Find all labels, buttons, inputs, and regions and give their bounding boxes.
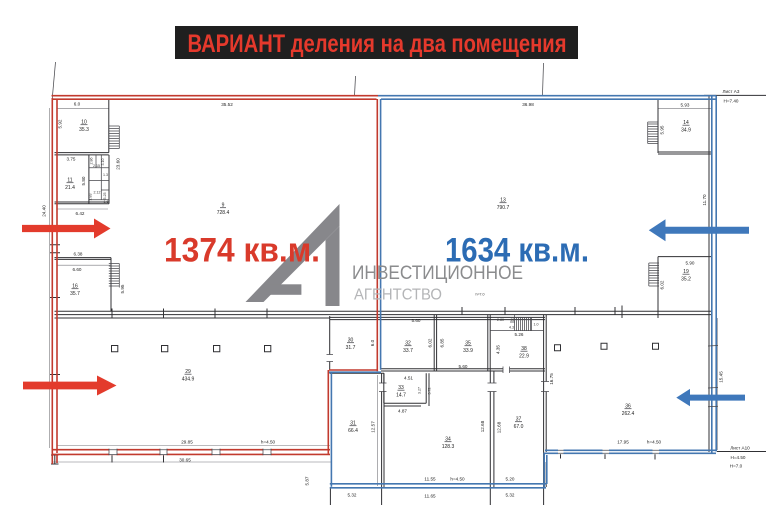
svg-text:АГЕНТСТВО: АГЕНТСТВО — [354, 287, 442, 304]
svg-text:21.4: 21.4 — [65, 185, 75, 191]
svg-text:h=4.50: h=4.50 — [261, 440, 276, 445]
svg-text:12.68: 12.68 — [480, 420, 485, 432]
svg-text:1.0: 1.0 — [534, 323, 539, 327]
svg-text:11.55: 11.55 — [424, 477, 436, 482]
svg-text:67.0: 67.0 — [514, 424, 524, 430]
svg-text:Н=7.40: Н=7.40 — [724, 99, 739, 104]
svg-text:2.15: 2.15 — [93, 164, 100, 168]
svg-text:Лист А10: Лист А10 — [730, 446, 750, 451]
svg-text:36.98: 36.98 — [522, 102, 534, 107]
svg-text:4.51: 4.51 — [404, 376, 413, 381]
svg-text:1.6: 1.6 — [104, 200, 109, 204]
svg-text:6.38: 6.38 — [74, 252, 83, 257]
svg-text:2.80: 2.80 — [497, 318, 504, 322]
svg-text:5.90: 5.90 — [686, 261, 695, 266]
svg-text:6.60: 6.60 — [73, 267, 82, 272]
svg-text:3.10: 3.10 — [101, 159, 105, 166]
svg-text:35.52: 35.52 — [221, 102, 233, 107]
svg-text:6.42: 6.42 — [76, 211, 85, 216]
svg-text:23.60: 23.60 — [116, 158, 121, 170]
svg-text:11.70: 11.70 — [702, 194, 707, 206]
svg-text:35.2: 35.2 — [681, 277, 691, 283]
svg-text:15.45: 15.45 — [719, 371, 724, 383]
svg-text:790.7: 790.7 — [497, 205, 510, 211]
svg-text:66.4: 66.4 — [348, 428, 358, 434]
svg-text:31.7: 31.7 — [346, 345, 356, 351]
svg-text:728.4: 728.4 — [217, 210, 230, 216]
svg-text:24.40: 24.40 — [42, 205, 47, 217]
svg-text:5.95: 5.95 — [660, 125, 665, 134]
svg-text:22.9: 22.9 — [519, 354, 529, 360]
svg-text:35.7: 35.7 — [70, 291, 80, 297]
svg-text:5.20: 5.20 — [506, 477, 515, 482]
svg-text:35.3: 35.3 — [79, 127, 89, 133]
svg-text:Н=7.0: Н=7.0 — [730, 464, 743, 469]
svg-text:4.87: 4.87 — [398, 409, 407, 414]
svg-text:29.85: 29.85 — [181, 440, 193, 445]
svg-text:6.02: 6.02 — [660, 280, 665, 289]
svg-text:128.3: 128.3 — [442, 444, 455, 450]
svg-text:6.85: 6.85 — [440, 338, 445, 347]
svg-text:5.87: 5.87 — [305, 476, 310, 485]
svg-text:33.9: 33.9 — [463, 348, 473, 354]
svg-text:6.0: 6.0 — [74, 102, 81, 107]
svg-text:16.75: 16.75 — [549, 373, 554, 385]
svg-text:3.27: 3.27 — [418, 387, 422, 394]
svg-text:5.32: 5.32 — [348, 493, 357, 498]
svg-text:ВАРИАНТ деления на два помещен: ВАРИАНТ деления на два помещения — [188, 30, 567, 58]
svg-text:11.65: 11.65 — [424, 494, 436, 499]
svg-text:1.3: 1.3 — [103, 173, 108, 177]
svg-text:5.93: 5.93 — [681, 103, 690, 108]
svg-text:12.68: 12.68 — [496, 421, 501, 433]
svg-text:6.0: 6.0 — [370, 339, 375, 346]
svg-text:434.9: 434.9 — [182, 377, 195, 383]
svg-text:14.7: 14.7 — [396, 393, 406, 399]
svg-text:5.25: 5.25 — [103, 193, 107, 200]
svg-text:4.3: 4.3 — [509, 326, 514, 330]
svg-text:5.92: 5.92 — [58, 119, 63, 128]
svg-text:5.32: 5.32 — [506, 493, 515, 498]
svg-text:22: 22 — [511, 318, 515, 322]
svg-text:Н=4.50: Н=4.50 — [731, 455, 746, 460]
svg-text:33.7: 33.7 — [403, 348, 413, 354]
svg-text:3.75: 3.75 — [67, 157, 76, 162]
svg-text:262.4: 262.4 — [622, 411, 635, 417]
svg-text:5.80: 5.80 — [81, 176, 86, 185]
svg-text:6.02: 6.02 — [428, 338, 433, 347]
svg-text:1634 кв.м.: 1634 кв.м. — [445, 232, 589, 270]
svg-text:5.26: 5.26 — [515, 332, 524, 337]
svg-text:1374 кв.м.: 1374 кв.м. — [164, 232, 320, 270]
svg-text:5.60: 5.60 — [412, 318, 421, 323]
svg-text:12.57: 12.57 — [371, 421, 376, 433]
svg-text:17.95: 17.95 — [617, 440, 629, 445]
svg-text:1.83: 1.83 — [89, 194, 93, 201]
svg-text:h=7.0: h=7.0 — [475, 293, 484, 297]
svg-text:5.95: 5.95 — [120, 284, 125, 293]
svg-text:4.35: 4.35 — [496, 345, 501, 354]
svg-text:30.65: 30.65 — [179, 458, 191, 463]
svg-text:34.9: 34.9 — [681, 128, 691, 134]
svg-text:h=4.50: h=4.50 — [450, 477, 465, 482]
svg-text:2.12: 2.12 — [94, 191, 101, 195]
svg-text:3.72: 3.72 — [428, 388, 432, 395]
svg-text:h=4.50: h=4.50 — [647, 440, 662, 445]
svg-text:Лист А3: Лист А3 — [723, 89, 740, 94]
svg-text:5.60: 5.60 — [459, 364, 468, 369]
